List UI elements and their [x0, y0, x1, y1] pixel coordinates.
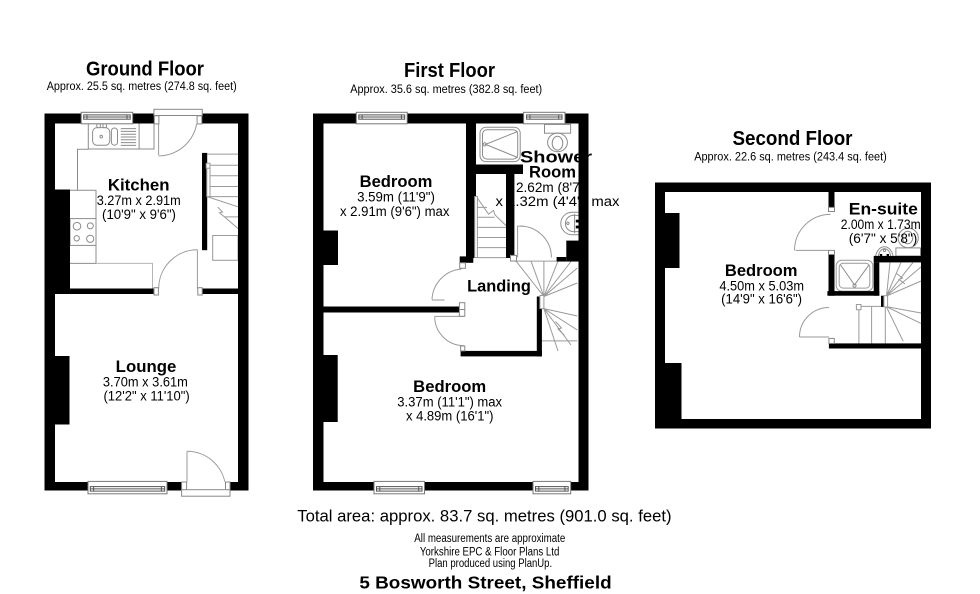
svg-text:First Floor: First Floor: [404, 60, 495, 82]
svg-text:5 Bosworth Street, Sheffield: 5 Bosworth Street, Sheffield: [359, 573, 611, 593]
svg-text:All measurements are approxima: All measurements are approximate: [414, 533, 565, 545]
svg-text:3.59m (11'9"): 3.59m (11'9"): [357, 190, 435, 205]
svg-text:3.37m (11'1") max: 3.37m (11'1") max: [397, 395, 502, 410]
svg-text:Lounge: Lounge: [116, 358, 177, 376]
svg-text:Ground Floor: Ground Floor: [86, 59, 204, 81]
svg-text:Approx. 35.6 sq. metres (382.8: Approx. 35.6 sq. metres (382.8 sq. feet): [350, 84, 542, 96]
svg-text:Bedroom: Bedroom: [413, 378, 486, 396]
svg-text:Approx. 25.5 sq. metres (274.8: Approx. 25.5 sq. metres (274.8 sq. feet): [47, 81, 237, 93]
svg-text:Kitchen: Kitchen: [108, 177, 170, 195]
svg-text:3.70m x 3.61m: 3.70m x 3.61m: [103, 375, 188, 390]
svg-text:Total area: approx. 83.7 sq. m: Total area: approx. 83.7 sq. metres (901…: [297, 507, 671, 526]
svg-text:(10'9" x 9'6"): (10'9" x 9'6"): [102, 207, 176, 222]
svg-text:2.00m x 1.73m: 2.00m x 1.73m: [841, 217, 921, 232]
svg-text:Bedroom: Bedroom: [725, 262, 798, 280]
svg-text:(14'9" x 16'6"): (14'9" x 16'6"): [721, 292, 802, 307]
svg-text:Approx. 22.6 sq. metres (243.4: Approx. 22.6 sq. metres (243.4 sq. feet): [694, 152, 887, 164]
svg-text:2.62m (8'7"): 2.62m (8'7"): [516, 180, 589, 195]
svg-text:Bedroom: Bedroom: [360, 173, 433, 191]
svg-text:(6'7" x 5'8"): (6'7" x 5'8"): [849, 231, 918, 246]
svg-text:3.27m x 2.91m: 3.27m x 2.91m: [97, 193, 181, 208]
svg-text:(12'2" x 11'10"): (12'2" x 11'10"): [103, 389, 189, 404]
svg-text:Yorkshire EPC & Floor Plans L: Yorkshire EPC & Floor Plans Ltd: [420, 547, 560, 559]
svg-text:x 4.89m (16'1"): x 4.89m (16'1"): [406, 409, 494, 424]
svg-text:Landing: Landing: [467, 278, 531, 296]
svg-text:En-suite: En-suite: [849, 201, 918, 219]
svg-text:Second Floor: Second Floor: [733, 128, 853, 150]
svg-text:x 2.91m (9'6") max: x 2.91m (9'6") max: [340, 204, 450, 219]
svg-text:Plan produced using PlanUp.: Plan produced using PlanUp.: [429, 558, 553, 570]
